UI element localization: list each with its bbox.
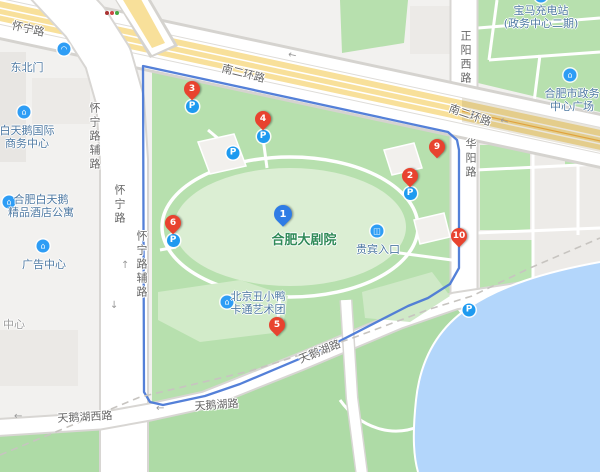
- office-building-icon[interactable]: ⌂: [37, 240, 50, 253]
- poi-label-line: 商务中心: [0, 137, 55, 150]
- map-pin-icon: 5: [266, 314, 289, 337]
- map-overlay: 合肥大剧院 怀宁路怀宁路辅路怀宁路怀宁路辅路南二环路南二环路正阳西路华阳路天鹅湖…: [0, 0, 600, 472]
- map-pin-icon: 3: [181, 78, 204, 101]
- road-direction-arrow: ↑: [121, 260, 129, 271]
- pin-number: 2: [402, 168, 418, 184]
- road-direction-arrow: ←: [14, 411, 22, 422]
- vip-entrance-label[interactable]: 贵宾入口: [356, 243, 400, 256]
- poi-label-line: 白天鹅国际: [0, 124, 55, 137]
- cartoon-art-troupe-label[interactable]: 北京丑小鸭卡通艺术团: [231, 290, 286, 316]
- gate-icon[interactable]: ◠: [58, 43, 71, 56]
- road-label: 天鹅湖西路: [57, 407, 113, 426]
- pin-number: 5: [269, 317, 285, 333]
- road-direction-arrow: ←: [287, 49, 298, 62]
- ad-center-label[interactable]: 广告中心: [22, 258, 66, 271]
- pin-number: 3: [184, 81, 200, 97]
- pin-number: 6: [165, 215, 181, 231]
- pin-number: 9: [429, 139, 445, 155]
- pin-number: 10: [451, 228, 467, 244]
- parking-badge[interactable]: P: [167, 234, 180, 247]
- poi-label-line: 贵宾入口: [356, 243, 400, 256]
- poi-label-line: 广告中心: [22, 258, 66, 271]
- road-label: 怀宁路辅路: [133, 230, 149, 300]
- swan-intl-business-center-label[interactable]: 白天鹅国际商务中心: [0, 124, 55, 150]
- road-direction-arrow: ↓: [110, 300, 118, 311]
- road-label: 怀宁路: [111, 184, 127, 226]
- poi-label-line: 中心广场: [545, 100, 600, 113]
- road-label: 怀宁路: [10, 17, 46, 40]
- office-building-icon[interactable]: ⌂: [18, 106, 31, 119]
- entrance-icon[interactable]: ◫: [371, 225, 384, 238]
- poi-label-line: 合肥市政务: [545, 87, 600, 100]
- pin-number: 4: [255, 111, 271, 127]
- road-label: 天鹅湖路: [296, 336, 343, 367]
- parking-badge[interactable]: P: [257, 130, 270, 143]
- map-pin-icon: 2: [399, 165, 422, 188]
- poi-label-line: (政务中心二期): [504, 17, 579, 30]
- road-direction-arrow: ←: [498, 115, 510, 128]
- road-direction-arrow: ←: [156, 403, 164, 414]
- poi-label-line: 宝马充电站: [504, 4, 579, 17]
- map-pin-icon: 9: [426, 136, 449, 159]
- parking-badge[interactable]: P: [404, 187, 417, 200]
- road-label: 华阳路: [462, 138, 478, 180]
- poi-label-line: 东北门: [11, 61, 44, 74]
- partial-center-label-label: 中心: [3, 318, 25, 331]
- map-viewport[interactable]: 合肥大剧院 怀宁路怀宁路辅路怀宁路怀宁路辅路南二环路南二环路正阳西路华阳路天鹅湖…: [0, 0, 600, 472]
- theater-name-label[interactable]: 合肥大剧院: [271, 229, 336, 248]
- poi-label-line: 北京丑小鸭: [231, 290, 286, 303]
- swan-boutique-hotel-label[interactable]: 合肥白天鹅精品酒店公寓: [8, 193, 74, 219]
- road-label: 天鹅湖路: [194, 395, 239, 414]
- road-label: 正阳西路: [457, 30, 473, 86]
- poi-label-line: 合肥白天鹅: [8, 193, 74, 206]
- poi-label-line: 中心: [3, 318, 25, 331]
- government-building-icon[interactable]: ⌂: [564, 69, 577, 82]
- map-pin-icon: 6: [162, 212, 185, 235]
- road-label: 南二环路: [220, 60, 267, 86]
- parking-badge[interactable]: P: [227, 147, 240, 160]
- government-center-plaza-label[interactable]: 合肥市政务中心广场: [545, 87, 600, 113]
- pin-number: 1: [274, 205, 292, 223]
- parking-badge[interactable]: P: [463, 304, 476, 317]
- road-label: 怀宁路辅路: [86, 102, 102, 172]
- bmw-charging-station-label[interactable]: 宝马充电站(政务中心二期): [504, 4, 579, 30]
- poi-label-line: 卡通艺术团: [231, 303, 286, 316]
- charging-station-icon[interactable]: ⚡: [535, 0, 548, 3]
- traffic-light-icon: [105, 11, 119, 15]
- map-pin-icon: 10: [448, 225, 471, 248]
- road-label: 南二环路: [447, 100, 494, 129]
- parking-badge[interactable]: P: [186, 100, 199, 113]
- northeast-gate-label[interactable]: 东北门: [11, 61, 44, 74]
- map-pin-icon: 4: [252, 108, 275, 131]
- map-pin-icon: 1: [270, 201, 295, 226]
- poi-label-line: 精品酒店公寓: [8, 206, 74, 219]
